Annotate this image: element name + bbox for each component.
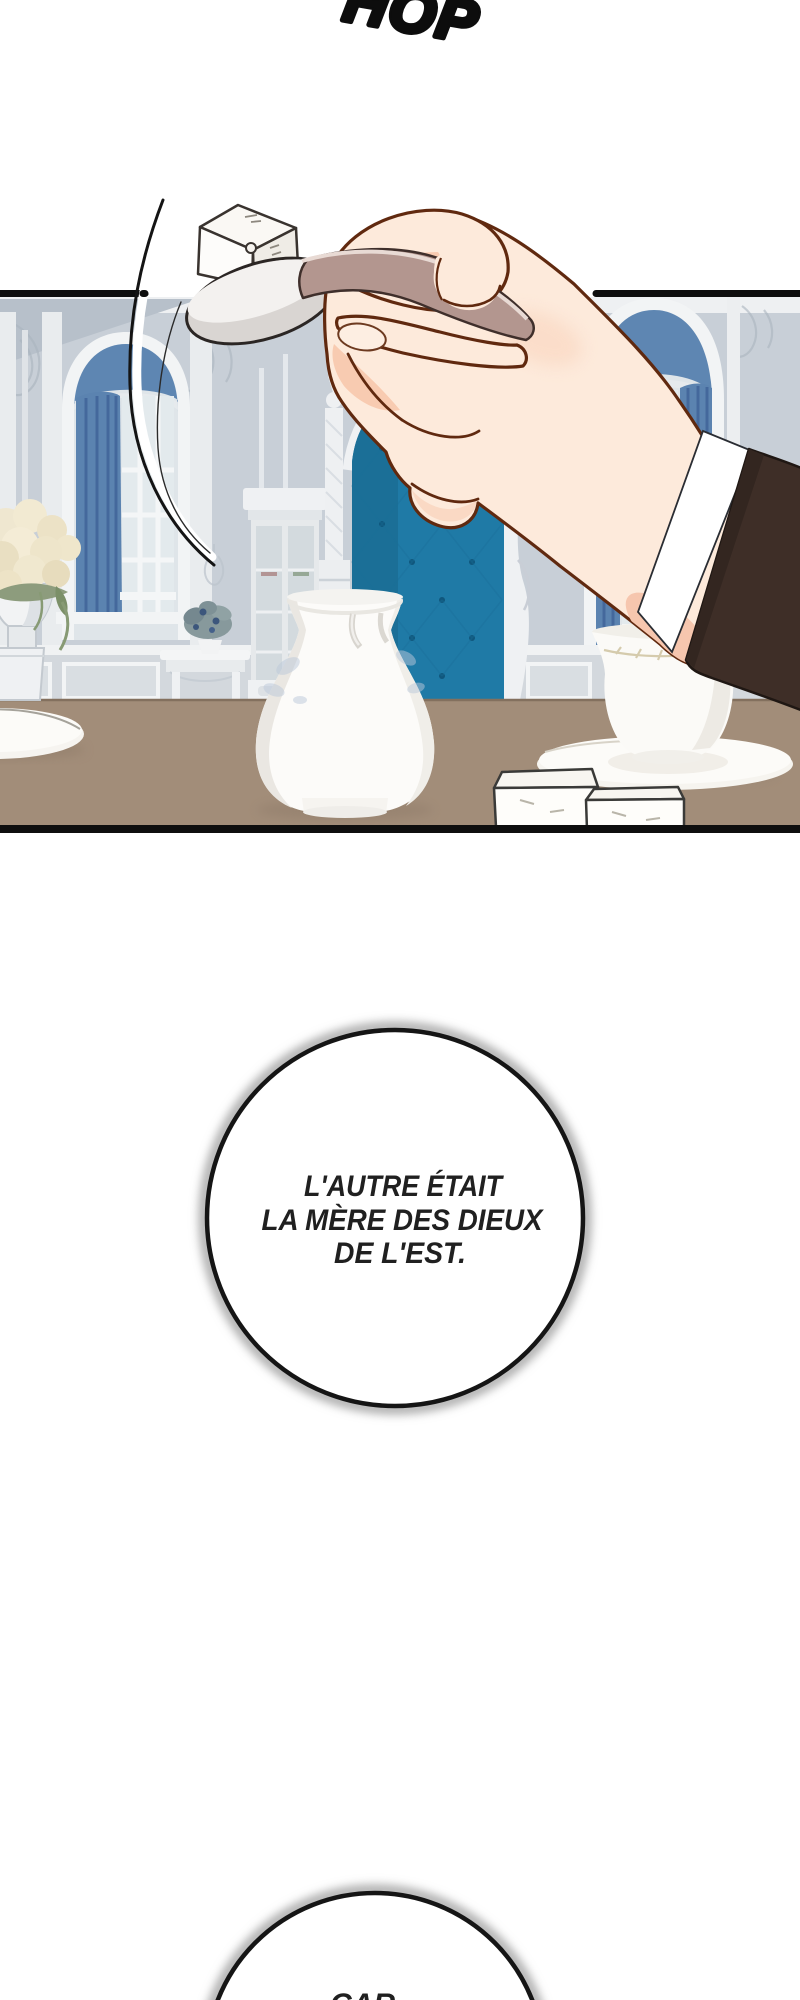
svg-text:CAR...: CAR... bbox=[330, 1988, 420, 2000]
svg-text:L'AUTRE ÉTAIT: L'AUTRE ÉTAIT bbox=[304, 1169, 504, 1203]
svg-text:DE L'EST.: DE L'EST. bbox=[334, 1237, 466, 1270]
svg-text:LA MÈRE DES DIEUX: LA MÈRE DES DIEUX bbox=[262, 1203, 545, 1237]
